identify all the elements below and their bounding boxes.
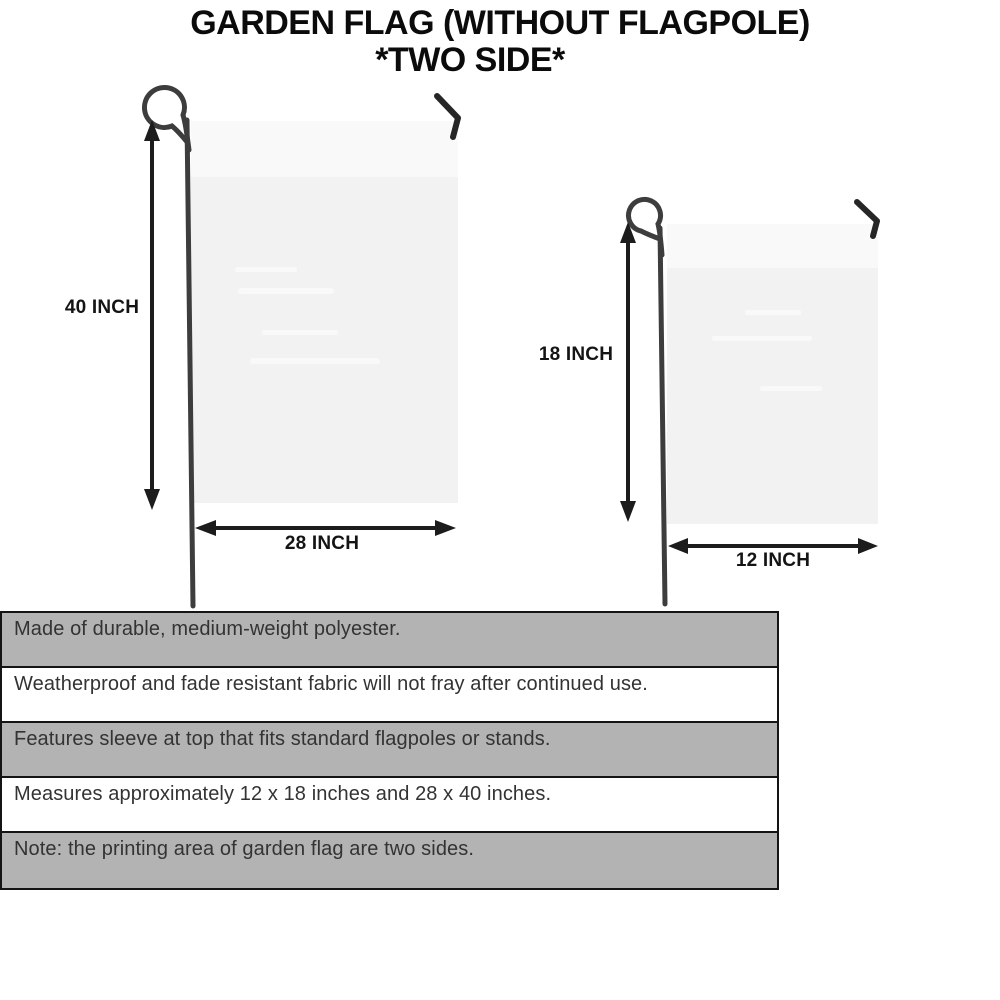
feature-row: Features sleeve at top that fits standar… bbox=[2, 723, 777, 778]
flag-fold bbox=[235, 267, 297, 272]
small-flag-height-label: 18 INCH bbox=[506, 344, 646, 366]
feature-row: Weatherproof and fade resistant fabric w… bbox=[2, 668, 777, 723]
feature-row: Made of durable, medium-weight polyester… bbox=[2, 613, 777, 668]
flag-fold bbox=[760, 386, 822, 391]
flag-fold bbox=[745, 310, 801, 315]
small-flag-width-label: 12 INCH bbox=[703, 550, 843, 572]
feature-text: Note: the printing area of garden flag a… bbox=[14, 838, 474, 860]
feature-text: Made of durable, medium-weight polyester… bbox=[14, 618, 401, 640]
pole-loop-icon bbox=[629, 199, 662, 255]
feature-text: Weatherproof and fade resistant fabric w… bbox=[14, 673, 648, 695]
small-flag-sleeve bbox=[667, 224, 878, 268]
large-flag-sleeve bbox=[191, 121, 458, 177]
feature-row: Note: the printing area of garden flag a… bbox=[2, 833, 777, 888]
flag-fold bbox=[250, 358, 380, 364]
large-flag-height-label: 40 INCH bbox=[42, 297, 162, 319]
flag-fold bbox=[712, 336, 812, 341]
feature-text: Measures approximately 12 x 18 inches an… bbox=[14, 783, 551, 805]
infographic-canvas: GARDEN FLAG (WITHOUT FLAGPOLE) *TWO SIDE… bbox=[0, 0, 1000, 1000]
large-flag-width-label: 28 INCH bbox=[252, 533, 392, 555]
height-arrow bbox=[620, 222, 636, 522]
small-flag-group bbox=[620, 199, 878, 604]
flag-fold bbox=[238, 288, 334, 294]
small-flag bbox=[667, 224, 878, 524]
large-flag-group bbox=[144, 87, 458, 606]
feature-row: Measures approximately 12 x 18 inches an… bbox=[2, 778, 777, 833]
large-flag bbox=[191, 121, 458, 503]
features-table: Made of durable, medium-weight polyester… bbox=[0, 611, 779, 890]
flagpole bbox=[660, 228, 665, 604]
flag-fold bbox=[262, 330, 338, 335]
feature-text: Features sleeve at top that fits standar… bbox=[14, 728, 551, 750]
